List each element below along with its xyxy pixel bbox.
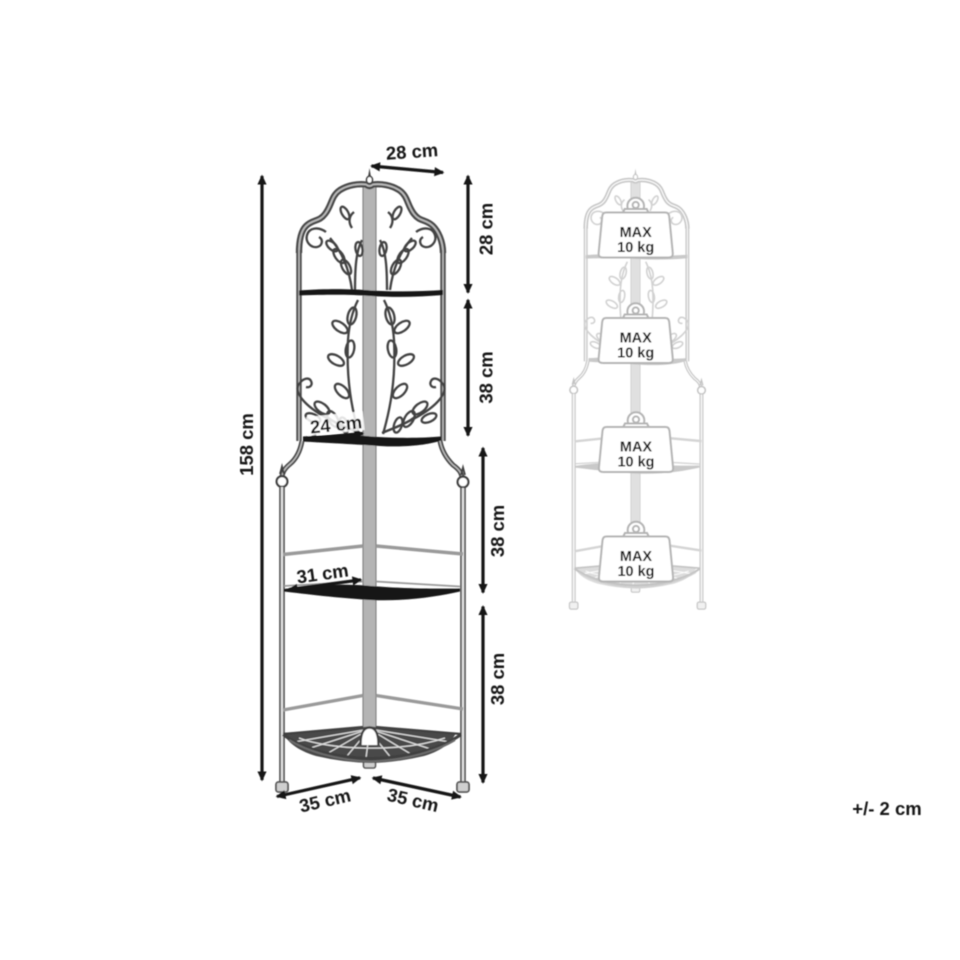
svg-text:10 kg: 10 kg <box>617 455 654 471</box>
svg-text:28 cm: 28 cm <box>385 139 438 164</box>
svg-text:10 kg: 10 kg <box>617 346 654 362</box>
svg-text:MAX: MAX <box>620 549 653 565</box>
svg-text:28 cm: 28 cm <box>475 203 496 255</box>
svg-text:10 kg: 10 kg <box>617 564 654 580</box>
svg-text:38 cm: 38 cm <box>475 351 496 403</box>
svg-text:10 kg: 10 kg <box>617 240 654 256</box>
svg-text:MAX: MAX <box>620 225 653 241</box>
svg-text:158 cm: 158 cm <box>236 413 257 475</box>
svg-text:MAX: MAX <box>620 331 653 347</box>
svg-text:38 cm: 38 cm <box>487 653 508 705</box>
svg-text:38 cm: 38 cm <box>487 505 508 557</box>
svg-text:MAX: MAX <box>620 440 653 456</box>
svg-text:+/- 2 cm: +/- 2 cm <box>852 798 921 819</box>
